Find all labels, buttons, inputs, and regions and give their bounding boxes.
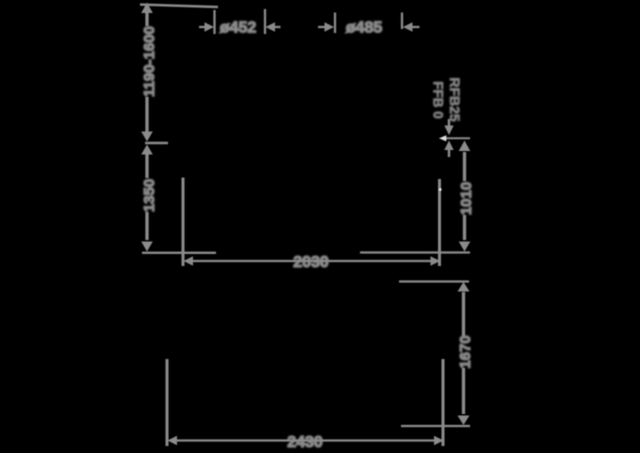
svg-text:1010: 1010 bbox=[458, 182, 475, 215]
svg-text:ø452: ø452 bbox=[220, 20, 257, 37]
svg-text:1670: 1670 bbox=[457, 335, 474, 368]
svg-text:ø485: ø485 bbox=[346, 20, 383, 37]
svg-text:2430: 2430 bbox=[287, 434, 323, 451]
svg-text:RFB25: RFB25 bbox=[447, 77, 463, 122]
svg-text:2030: 2030 bbox=[293, 254, 329, 271]
svg-text:1190-1600: 1190-1600 bbox=[141, 26, 158, 97]
svg-text:1350: 1350 bbox=[141, 179, 158, 212]
svg-text:FFB 0: FFB 0 bbox=[431, 81, 446, 119]
